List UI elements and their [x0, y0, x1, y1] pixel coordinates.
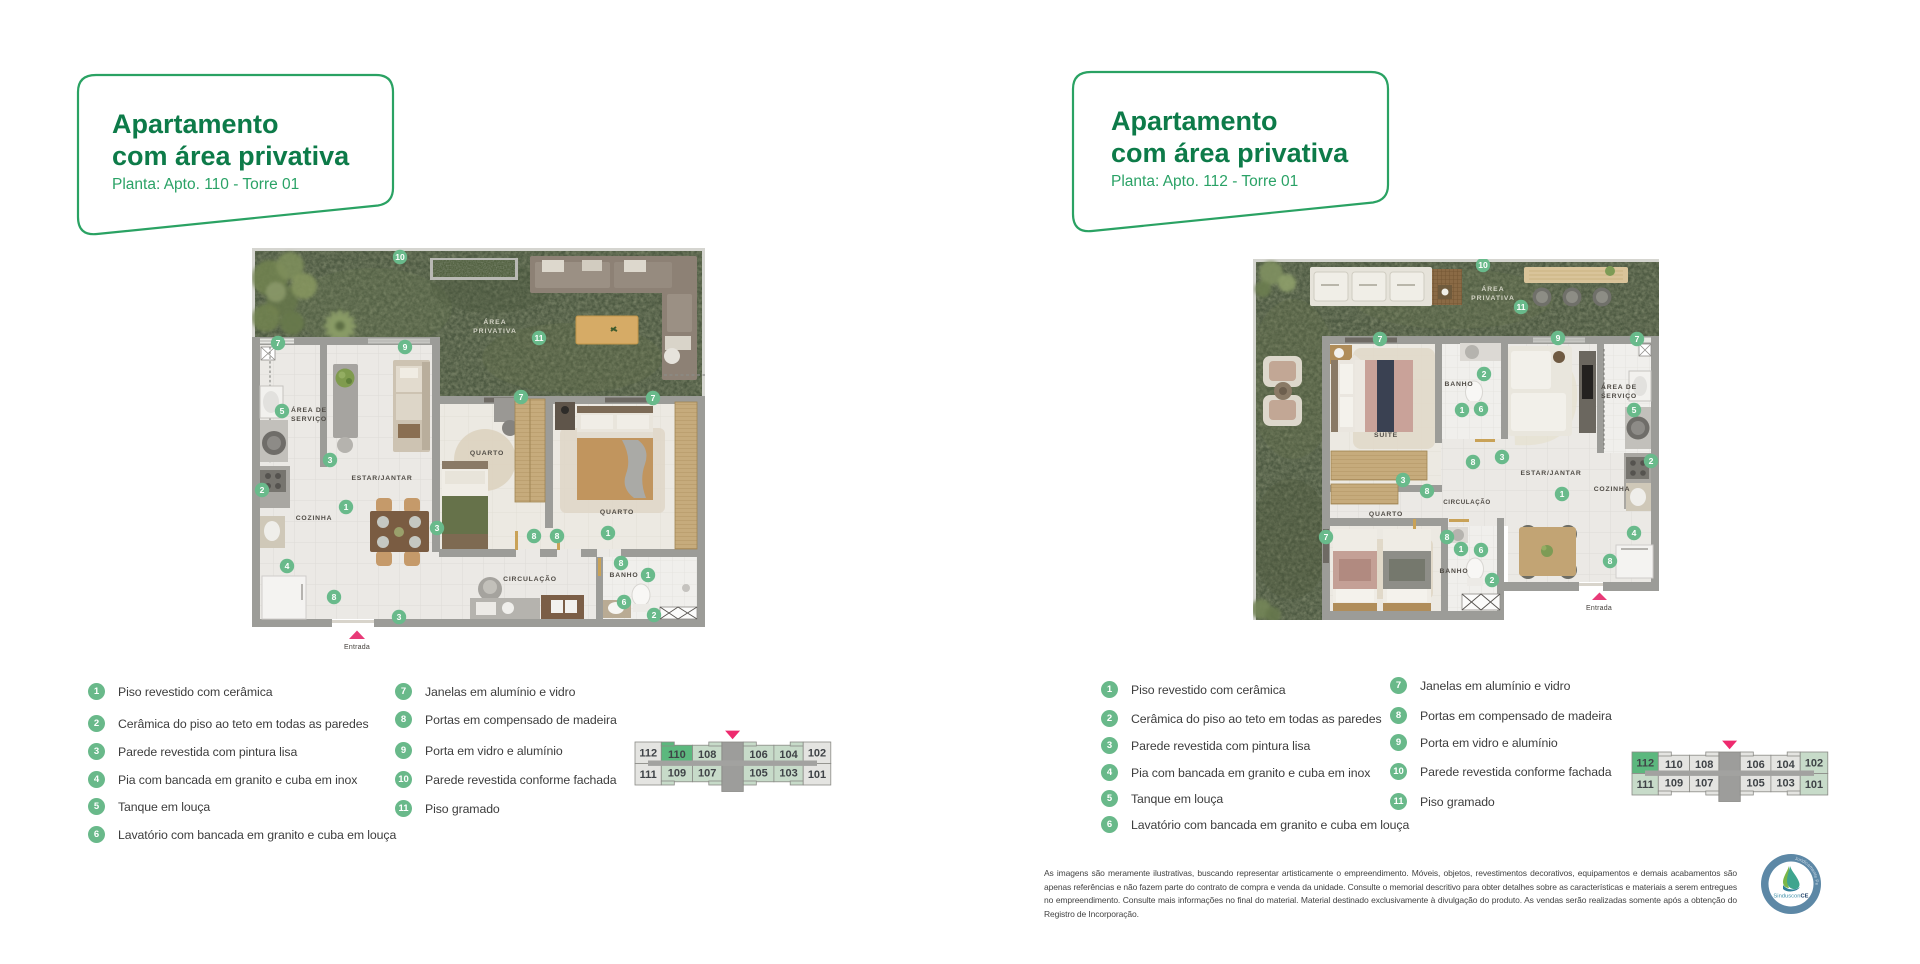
svg-text:10: 10	[1478, 260, 1488, 270]
svg-text:5: 5	[1632, 405, 1637, 415]
svg-text:QUARTO: QUARTO	[1369, 511, 1403, 518]
svg-text:8: 8	[332, 592, 337, 602]
svg-text:SindusconCE: SindusconCE	[1773, 894, 1808, 900]
svg-text:111: 111	[1637, 779, 1654, 791]
svg-text:105: 105	[749, 767, 767, 779]
svg-text:COZINHA: COZINHA	[296, 515, 333, 522]
svg-text:ÁREA: ÁREA	[483, 317, 506, 326]
svg-text:3: 3	[328, 455, 333, 465]
svg-text:7: 7	[651, 393, 656, 403]
svg-text:QUARTO: QUARTO	[470, 450, 504, 457]
svg-text:1: 1	[1560, 489, 1565, 499]
svg-text:109: 109	[668, 767, 686, 779]
svg-text:Entrada: Entrada	[1586, 605, 1612, 612]
svg-text:105: 105	[1746, 777, 1764, 789]
svg-text:7: 7	[519, 392, 524, 402]
svg-text:106: 106	[1746, 759, 1764, 771]
svg-text:1: 1	[606, 528, 611, 538]
svg-text:com área privativa: com área privativa	[1111, 138, 1349, 168]
svg-text:4: 4	[285, 561, 290, 571]
svg-text:107: 107	[698, 767, 716, 779]
svg-text:BANHO: BANHO	[1445, 381, 1474, 388]
svg-text:BANHO: BANHO	[1440, 568, 1469, 575]
svg-text:11: 11	[534, 333, 543, 343]
svg-text:Planta: Apto. 112 - Torre 01: Planta: Apto. 112 - Torre 01	[1111, 173, 1298, 190]
svg-text:111: 111	[640, 769, 657, 781]
svg-text:ÁREA: ÁREA	[1481, 284, 1504, 293]
svg-text:PRIVATIVA: PRIVATIVA	[473, 328, 517, 335]
svg-text:102: 102	[1805, 758, 1823, 770]
svg-text:7: 7	[1635, 334, 1640, 344]
svg-text:2: 2	[1649, 456, 1654, 466]
svg-text:Planta: Apto. 110 - Torre 01: Planta: Apto. 110 - Torre 01	[112, 176, 299, 193]
svg-text:3: 3	[1500, 452, 1505, 462]
svg-text:102: 102	[808, 748, 826, 760]
svg-text:7: 7	[276, 338, 281, 348]
svg-text:6: 6	[622, 597, 627, 607]
svg-text:ESTAR/JANTAR: ESTAR/JANTAR	[351, 475, 412, 482]
svg-text:SUÍTE: SUÍTE	[1374, 430, 1398, 439]
svg-text:COZINHA: COZINHA	[1594, 486, 1631, 493]
svg-text:ÁREA DE: ÁREA DE	[1601, 382, 1637, 391]
svg-text:7: 7	[1378, 334, 1383, 344]
svg-text:6: 6	[1479, 404, 1484, 414]
svg-text:8: 8	[619, 558, 624, 568]
svg-text:108: 108	[1695, 759, 1713, 771]
svg-text:Apartamento: Apartamento	[1111, 106, 1278, 136]
svg-text:1: 1	[1460, 405, 1465, 415]
svg-text:103: 103	[779, 767, 797, 779]
svg-text:106: 106	[749, 749, 767, 761]
svg-text:110: 110	[668, 749, 686, 761]
svg-text:1: 1	[344, 502, 349, 512]
svg-text:4: 4	[1632, 528, 1637, 538]
svg-text:109: 109	[1665, 777, 1683, 789]
svg-text:108: 108	[698, 749, 716, 761]
svg-text:107: 107	[1695, 777, 1713, 789]
svg-text:3: 3	[1401, 475, 1406, 485]
svg-text:9: 9	[403, 342, 408, 352]
svg-text:2: 2	[1490, 575, 1495, 585]
svg-text:9: 9	[1556, 333, 1561, 343]
svg-text:2: 2	[260, 485, 265, 495]
svg-text:7: 7	[1324, 532, 1329, 542]
svg-text:11: 11	[1516, 302, 1525, 312]
svg-text:104: 104	[779, 749, 798, 761]
svg-text:Apartamento: Apartamento	[112, 109, 279, 139]
svg-text:6: 6	[1479, 545, 1484, 555]
svg-text:SERVIÇO: SERVIÇO	[291, 416, 327, 423]
svg-text:2: 2	[652, 610, 657, 620]
svg-text:112: 112	[1636, 758, 1654, 770]
svg-text:CIRCULAÇÃO: CIRCULAÇÃO	[503, 574, 557, 583]
svg-text:CIRCULAÇÃO: CIRCULAÇÃO	[1443, 499, 1491, 506]
svg-text:5: 5	[280, 406, 285, 416]
svg-text:BANHO: BANHO	[610, 572, 639, 579]
svg-text:8: 8	[1471, 457, 1476, 467]
svg-text:PRIVATIVA: PRIVATIVA	[1471, 295, 1515, 302]
svg-text:101: 101	[1805, 779, 1823, 791]
svg-text:QUARTO: QUARTO	[600, 509, 634, 516]
svg-text:8: 8	[1445, 532, 1450, 542]
svg-text:SERVIÇO: SERVIÇO	[1601, 393, 1637, 400]
svg-text:3: 3	[397, 612, 402, 622]
svg-text:103: 103	[1776, 777, 1794, 789]
svg-text:1: 1	[646, 570, 651, 580]
svg-text:110: 110	[1665, 759, 1683, 771]
svg-text:3: 3	[435, 523, 440, 533]
svg-text:ESTAR/JANTAR: ESTAR/JANTAR	[1520, 470, 1581, 477]
svg-text:Entrada: Entrada	[344, 644, 370, 651]
svg-text:com área privativa: com área privativa	[112, 141, 350, 171]
svg-text:1: 1	[1459, 544, 1464, 554]
svg-text:101: 101	[808, 769, 826, 781]
svg-text:8: 8	[555, 531, 560, 541]
svg-text:10: 10	[395, 252, 405, 262]
svg-text:8: 8	[532, 531, 537, 541]
svg-text:8: 8	[1608, 556, 1613, 566]
svg-text:104: 104	[1776, 759, 1795, 771]
svg-text:2: 2	[1482, 369, 1487, 379]
svg-text:ÁREA DE: ÁREA DE	[291, 405, 327, 414]
svg-text:8: 8	[1425, 486, 1430, 496]
svg-text:112: 112	[639, 748, 657, 760]
